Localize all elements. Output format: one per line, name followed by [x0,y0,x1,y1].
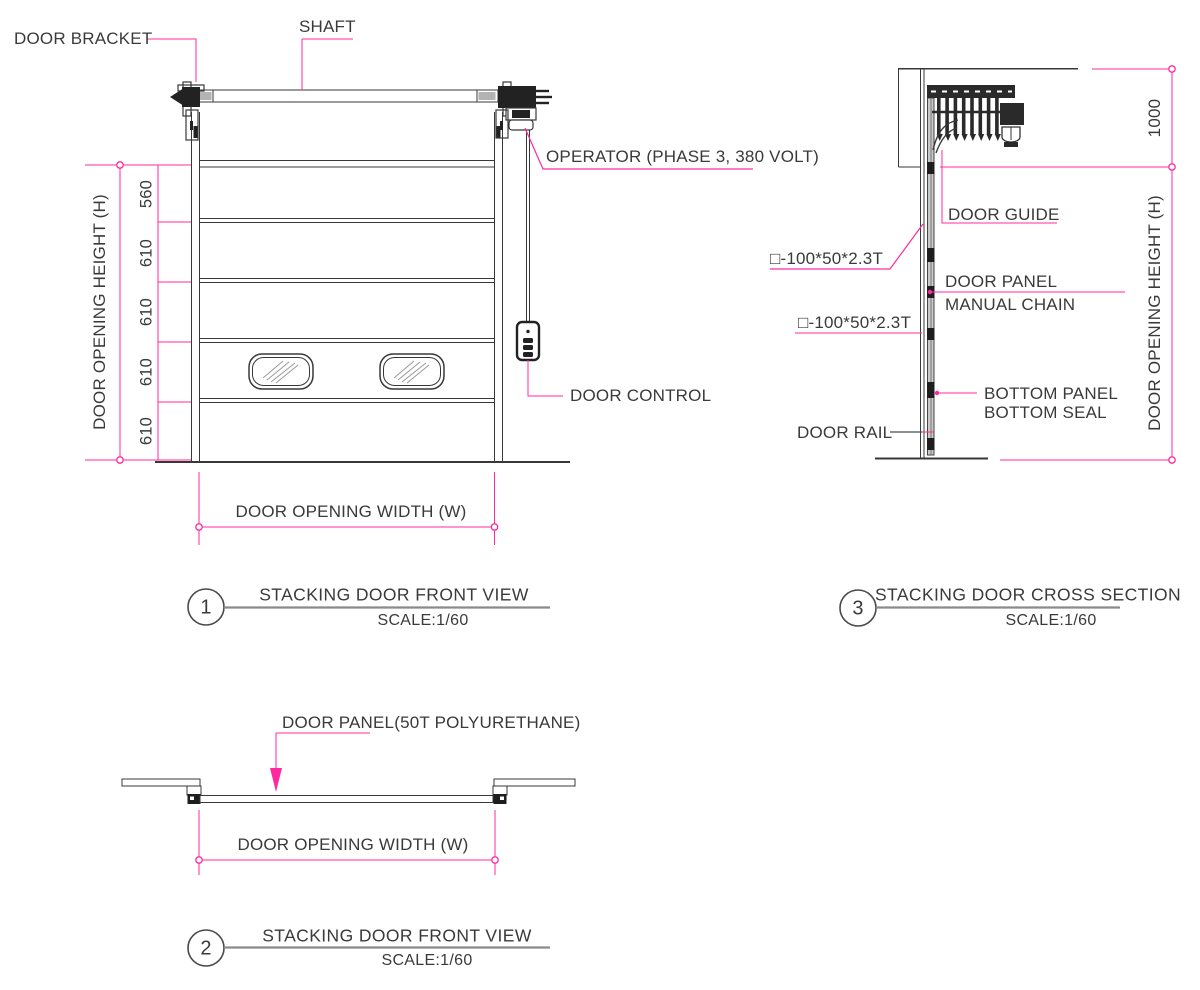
door-control-box [517,322,539,360]
panel-arrowhead [270,768,282,792]
height-dimension-label-section: DOOR OPENING HEIGHT (H) [1145,195,1165,431]
segment-dim-610-4: 610 [138,417,157,445]
view2-scale: SCALE:1/60 [381,952,472,970]
bottom-seal-label: BOTTOM SEAL [984,403,1107,423]
header-height-dim-1000: 1000 [1145,99,1165,138]
shaft-label: SHAFT [299,17,356,37]
view3-number: 3 [852,598,863,621]
door-panel-label: DOOR PANEL [945,272,1057,292]
door-control-label: DOOR CONTROL [570,386,711,406]
stacked-door-assembly [927,85,1024,153]
front-view-dim-endpoints [117,162,498,530]
view2-number: 2 [200,938,211,961]
view1-title: STACKING DOOR FRONT VIEW [259,585,529,606]
segment-dim-610-1: 610 [138,239,157,267]
height-dimension-label-front: DOOR OPENING HEIGHT (H) [90,194,110,430]
cad-drawing-sheet: DOOR BRACKET SHAFT OPERATOR (PHASE 3, 38… [0,0,1200,990]
segment-dim-560: 560 [138,180,157,208]
width-dimension-label-plan: DOOR OPENING WIDTH (W) [237,835,468,855]
operator-label: OPERATOR (PHASE 3, 380 VOLT) [546,147,819,167]
front-view-dimensions [85,39,753,545]
view2-title: STACKING DOOR FRONT VIEW [262,926,532,947]
segment-dim-610-3: 610 [138,358,157,386]
manual-chain-label: MANUAL CHAIN [945,295,1075,315]
square-tube-lower-label: □-100*50*2.3T [798,313,911,333]
bottom-panel-label: BOTTOM PANEL [984,384,1118,404]
door-windows [249,354,444,389]
width-dimension-label-front: DOOR OPENING WIDTH (W) [235,502,466,522]
plan-door-panel-label: DOOR PANEL(50T POLYURETHANE) [282,713,580,733]
view3-title: STACKING DOOR CROSS SECTION [875,585,1181,606]
segment-dim-610-2: 610 [138,298,157,326]
front-view-drawing [155,90,570,462]
door-guide-label: DOOR GUIDE [948,205,1060,225]
door-rail-label: DOOR RAIL [797,423,892,443]
view1-number: 1 [200,597,211,620]
view1-scale: SCALE:1/60 [377,612,468,630]
square-tube-upper-label: □-100*50*2.3T [770,249,883,269]
door-bracket-label: DOOR BRACKET [14,29,152,49]
view-title-markers [188,589,1120,966]
plan-view-drawing [122,779,575,804]
view3-scale: SCALE:1/60 [1005,612,1096,630]
